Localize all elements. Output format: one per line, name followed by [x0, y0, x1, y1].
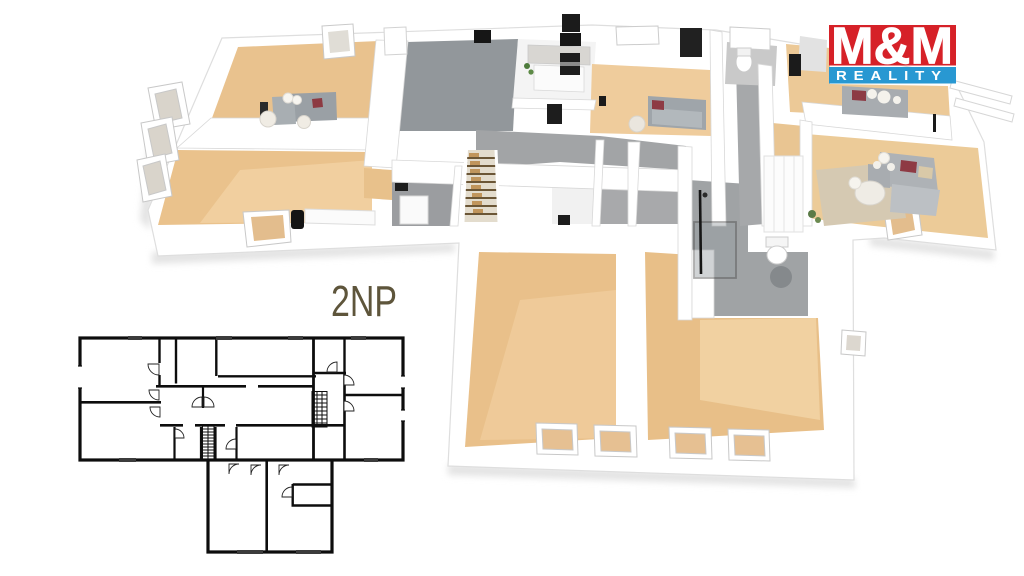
svg-text:REALITY: REALITY [836, 68, 948, 83]
svg-text:M&M: M&M [831, 18, 953, 76]
svg-text:2NP: 2NP [331, 277, 397, 326]
